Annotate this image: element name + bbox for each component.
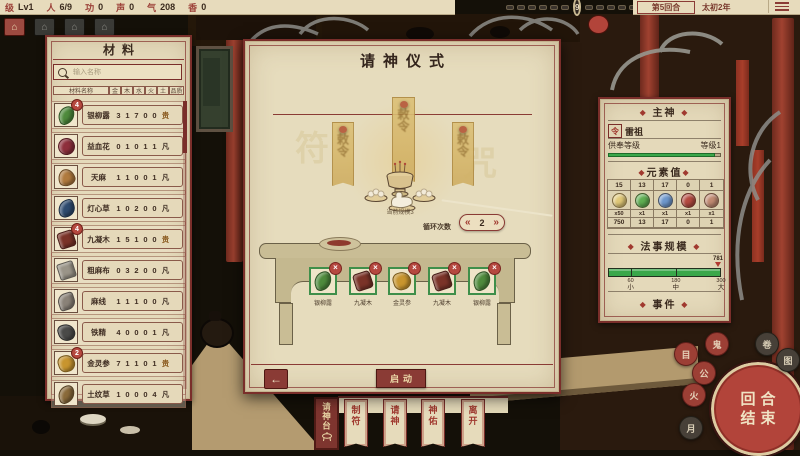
element-total: 750 — [608, 218, 631, 228]
turn-progress: 9 — [506, 0, 636, 14]
search-input[interactable] — [71, 68, 177, 77]
element-current-value: 0 — [677, 180, 700, 191]
element-value: 1 — [114, 297, 123, 306]
divider — [53, 59, 184, 60]
material-name: 土纹草 — [83, 389, 114, 400]
god-name: 雷祖 — [625, 125, 643, 138]
element-total: 1 — [700, 218, 723, 228]
stat: 功0 — [85, 1, 103, 14]
element-value: 7 — [114, 359, 123, 368]
stat-value: 6/9 — [60, 2, 73, 12]
header-quality: 品质 — [169, 86, 184, 95]
material-icon — [54, 289, 78, 313]
material-quality: 贵 — [159, 358, 172, 369]
cycle-stepper: « 2 » — [459, 214, 505, 231]
slot-item-label: 九凝木 — [420, 298, 464, 307]
stat: 声0 — [116, 1, 134, 14]
offering-slot[interactable]: × — [468, 267, 496, 295]
worship-level-value: 等级1 — [701, 140, 721, 151]
element-value: 0 — [141, 328, 150, 337]
material-name: 九凝木 — [83, 234, 114, 245]
element-value: 0 — [150, 204, 159, 213]
year-label: 太初2年 — [702, 2, 730, 13]
materials-panel: 材料 材料名称 金木水火土 品质 4银柳露31700贵益血花01011凡天麻11… — [45, 35, 192, 401]
game-screen: { "top_bar": { "stats": [ {"label": "级",… — [0, 0, 800, 450]
element-value: 1 — [132, 297, 141, 306]
element-value: 3 — [114, 111, 123, 120]
element-value: 0 — [141, 359, 150, 368]
element-value: 1 — [141, 142, 150, 151]
tab-divine-blessing[interactable]: 神佑 — [421, 399, 445, 447]
seal-button[interactable]: 卷 — [755, 332, 779, 356]
material-quality: 凡 — [159, 172, 172, 183]
material-icon-shape — [55, 290, 76, 311]
turn-dash — [539, 5, 547, 10]
end-turn-button[interactable]: 回合 结束 — [711, 362, 800, 456]
material-info: 麻线11100凡 — [82, 291, 183, 311]
remove-slot-button[interactable]: × — [369, 262, 382, 275]
material-name: 麻线 — [83, 296, 114, 307]
scale-tick: 300大 — [709, 278, 733, 291]
material-icon: 2 — [54, 351, 78, 375]
element-value: 0 — [150, 297, 159, 306]
material-icon: 4 — [54, 103, 78, 127]
seal-button[interactable]: 鬼 — [705, 332, 729, 356]
material-quality: 凡 — [159, 265, 172, 276]
element-value: 0 — [132, 390, 141, 399]
element-value: 0 — [150, 111, 159, 120]
scale-division — [631, 268, 632, 277]
scale-marker-arrow — [715, 262, 721, 267]
count-badge: 2 — [71, 347, 83, 359]
view-buttons: ⌂⌂⌂⌂ — [4, 18, 115, 36]
scrollbar-thumb[interactable] — [183, 101, 187, 153]
element-current-value: 13 — [631, 180, 654, 191]
element-value: 0 — [141, 266, 150, 275]
material-info: 灯心草10200凡 — [82, 198, 183, 218]
talisman-banner-right: 敕令 — [452, 122, 474, 186]
count-badge: 4 — [71, 223, 83, 235]
turn-dash — [561, 5, 569, 10]
material-name: 天麻 — [83, 172, 114, 183]
material-quality: 凡 — [159, 141, 172, 152]
turn-number-badge: 9 — [573, 0, 581, 16]
turn-dash — [596, 5, 604, 10]
ghost-glyph: 符 — [295, 121, 329, 170]
stat-value: 0 — [201, 2, 206, 12]
material-info: 土纹草10004凡 — [82, 384, 183, 404]
material-quality: 凡 — [159, 327, 172, 338]
back-button[interactable]: ← — [264, 369, 288, 389]
material-info: 银柳露31700贵 — [82, 105, 183, 125]
element-value: 1 — [114, 390, 123, 399]
element-value: 0 — [123, 390, 132, 399]
material-quality: 凡 — [159, 203, 172, 214]
scale-tick: 60小 — [619, 278, 643, 291]
seal-button[interactable]: 公 — [692, 361, 716, 385]
header-element: 火 — [145, 86, 157, 95]
element-value: 1 — [150, 173, 159, 182]
element-value: 0 — [114, 266, 123, 275]
element-current-value: 1 — [700, 180, 723, 191]
materials-title: 材料 — [47, 41, 190, 58]
material-name: 铁精 — [83, 327, 114, 338]
element-value: 1 — [123, 111, 132, 120]
stat-value: 208 — [160, 2, 175, 12]
element-value: 1 — [123, 359, 132, 368]
cycle-count-label: 循环次数 — [423, 222, 451, 232]
seal-button[interactable]: 火 — [682, 383, 706, 407]
element-orb-icon — [658, 193, 673, 208]
header-elements: 金木水火土 — [109, 86, 169, 95]
material-name: 银柳露 — [83, 110, 114, 121]
stat: 气208 — [147, 1, 175, 14]
turn-dash — [607, 5, 615, 10]
element-value: 0 — [123, 204, 132, 213]
offering-slot[interactable]: × — [349, 267, 377, 295]
ritual-modal: 请神仪式 符 咒 敕令 敕令 敕令 当前规模3 循环次数 « 2 » ×银柳露×… — [243, 39, 561, 394]
element-value: 0 — [114, 142, 123, 151]
header-element: 水 — [133, 86, 145, 95]
stat-label: 功 — [85, 1, 94, 14]
tab-make-talisman[interactable]: 制符 — [344, 399, 368, 447]
worship-progress-fill — [608, 153, 715, 157]
element-total: 13 — [631, 218, 654, 228]
material-icon — [54, 382, 78, 406]
top-stats: 级Lv1人6/9功0声0气208香0 — [0, 0, 455, 14]
altar-leg — [279, 303, 293, 345]
element-icon-cell — [700, 191, 723, 210]
material-info: 金灵参71101贵 — [82, 353, 183, 373]
view-toggle-1[interactable]: ⌂ — [4, 18, 25, 36]
element-value: 0 — [132, 328, 141, 337]
god-status-panel: ◆ 主神 ◆ 令 雷祖 供奉等级 等级1 ◆元素值◆ 15131701x50x1… — [598, 97, 731, 323]
material-quality: 凡 — [159, 296, 172, 307]
header-material-name: 材料名称 — [53, 86, 109, 95]
materials-list: 4银柳露31700贵益血花01011凡天麻11001凡灯心草10200凡4九凝木… — [51, 101, 186, 408]
stat: 级Lv1 — [5, 1, 34, 14]
element-current-value: 17 — [654, 180, 677, 191]
burner-icon — [321, 432, 333, 442]
turn-dash — [585, 5, 593, 10]
scene-bowl — [80, 414, 106, 424]
element-value: 1 — [123, 297, 132, 306]
stat-label: 级 — [5, 1, 14, 14]
tab-ritual-altar[interactable]: 请神台 — [314, 397, 339, 450]
turn-dashes-right — [585, 5, 637, 10]
cycle-value: 2 — [479, 218, 484, 228]
element-values-table: 15131701x50x1x1x1x1750131701 — [607, 179, 724, 229]
material-icon — [54, 320, 78, 344]
element-multiplier: x1 — [700, 210, 723, 218]
round-counter: 第5回合 — [637, 1, 695, 14]
start-ritual-button[interactable]: 启动 — [376, 369, 426, 388]
turn-dashes-left — [506, 5, 569, 10]
element-value: 0 — [150, 266, 159, 275]
element-value: 0 — [141, 390, 150, 399]
element-value: 1 — [150, 142, 159, 151]
modal-title: 请神仪式 — [245, 50, 559, 71]
element-value: 3 — [123, 266, 132, 275]
element-value: 1 — [132, 235, 141, 244]
element-value: 0 — [132, 173, 141, 182]
material-name: 益血花 — [83, 141, 114, 152]
offering-slot[interactable]: × — [309, 267, 337, 295]
slot-item-label: 银柳露 — [301, 298, 345, 307]
material-info: 天麻11001凡 — [82, 167, 183, 187]
element-value: 0 — [141, 297, 150, 306]
material-icon — [54, 165, 78, 189]
scale-tick-label: 大 — [709, 284, 733, 291]
stat-value: 0 — [129, 2, 134, 12]
element-value: 0 — [141, 235, 150, 244]
scale-division — [676, 268, 677, 277]
stat-label: 声 — [116, 1, 125, 14]
element-value: 1 — [123, 173, 132, 182]
material-quality: 贵 — [159, 110, 172, 121]
element-total: 0 — [677, 218, 700, 228]
seal-button[interactable]: 月 — [679, 416, 703, 440]
element-orb-icon — [704, 193, 719, 208]
turn-dash — [618, 5, 626, 10]
scale-tick-label: 中 — [664, 284, 688, 291]
talisman-banner-left: 敕令 — [332, 122, 354, 186]
element-multiplier: x1 — [654, 210, 677, 218]
material-row[interactable]: 2金灵参71101贵 — [51, 349, 186, 377]
element-current-value: 15 — [608, 180, 631, 191]
turn-dash — [517, 5, 525, 10]
element-multiplier: x1 — [677, 210, 700, 218]
main-god-header: ◆ 主神 ◆ — [600, 104, 729, 119]
element-orb-icon — [681, 193, 696, 208]
search-box[interactable] — [53, 64, 182, 80]
material-info: 粗麻布03200凡 — [82, 260, 183, 280]
turn-dash — [550, 5, 558, 10]
material-quality: 凡 — [159, 389, 172, 400]
stat-label: 人 — [47, 1, 56, 14]
element-icon-cell — [677, 191, 700, 210]
material-row[interactable]: 麻线11100凡 — [51, 287, 186, 315]
stat: 人6/9 — [47, 1, 73, 14]
header-element: 木 — [121, 86, 133, 95]
element-value: 0 — [141, 111, 150, 120]
stat-label: 香 — [188, 1, 197, 14]
slot-item-label: 金灵参 — [380, 298, 424, 307]
element-value: 0 — [123, 328, 132, 337]
offering-slot[interactable]: × — [428, 267, 456, 295]
element-value: 2 — [132, 204, 141, 213]
divider — [251, 364, 553, 365]
material-quality: 贵 — [159, 234, 172, 245]
element-value: 0 — [141, 173, 150, 182]
material-row[interactable]: 土纹草10004凡 — [51, 380, 186, 408]
view-toggle-4[interactable]: ⌂ — [94, 18, 115, 36]
material-info: 益血花01011凡 — [82, 136, 183, 156]
material-icon — [54, 196, 78, 220]
element-value: 0 — [141, 204, 150, 213]
material-icon — [54, 134, 78, 158]
material-row[interactable]: 粗麻布03200凡 — [51, 256, 186, 284]
element-icon-cell — [608, 191, 631, 210]
ritual-scale-bar — [608, 268, 721, 277]
cycle-decrease-button[interactable]: « — [465, 218, 471, 228]
remove-slot-button[interactable]: × — [408, 262, 421, 275]
stat: 香0 — [188, 1, 206, 14]
material-row[interactable]: 灯心草10200凡 — [51, 194, 186, 222]
element-value: 0 — [132, 142, 141, 151]
material-name: 灯心草 — [83, 203, 114, 214]
scene-pot — [32, 420, 50, 434]
offering-slot[interactable]: × — [388, 267, 416, 295]
element-value: 4 — [114, 328, 123, 337]
material-icon-shape — [55, 321, 76, 342]
element-orb-icon — [612, 193, 627, 208]
scale-tick-label: 小 — [619, 284, 643, 291]
remove-slot-button[interactable]: × — [329, 262, 342, 275]
scene-stool — [200, 318, 234, 348]
cycle-increase-button[interactable]: » — [493, 218, 499, 228]
element-value: 4 — [150, 390, 159, 399]
slot-item-label: 九凝木 — [341, 298, 385, 307]
remove-slot-button[interactable]: × — [448, 262, 461, 275]
altar-tabletop — [259, 243, 531, 259]
element-value: 1 — [132, 359, 141, 368]
element-value: 7 — [132, 111, 141, 120]
worship-level-label: 供奉等级 — [608, 140, 640, 151]
incense-burner — [362, 160, 438, 214]
material-icon-shape — [55, 259, 76, 280]
material-name: 粗麻布 — [83, 265, 114, 276]
stat-value: 0 — [98, 2, 103, 12]
header-element: 土 — [157, 86, 169, 95]
remove-slot-button[interactable]: × — [488, 262, 501, 275]
element-value: 1 — [150, 328, 159, 337]
material-icon-shape — [55, 135, 76, 156]
menu-button[interactable] — [768, 0, 794, 13]
material-icon-shape — [55, 166, 76, 187]
god-tablet-icon: 令 — [608, 124, 622, 138]
elements-header: ◆元素值◆ — [600, 164, 729, 179]
element-multiplier: x50 — [608, 210, 631, 218]
scene-bowl — [120, 426, 140, 434]
element-value: 0 — [150, 235, 159, 244]
material-name: 金灵参 — [83, 358, 114, 369]
element-value: 1 — [150, 359, 159, 368]
tab-leave[interactable]: 离开 — [461, 399, 485, 447]
material-icon-shape — [55, 383, 76, 404]
material-icon — [54, 258, 78, 282]
stat-value: Lv1 — [18, 2, 34, 12]
turn-dash — [506, 5, 514, 10]
offering-food — [327, 240, 351, 246]
view-toggle-3[interactable]: ⌂ — [64, 18, 85, 36]
material-info: 九凝木15100贵 — [82, 229, 183, 249]
burner-caption: 当前规模3 — [355, 207, 445, 216]
search-icon — [58, 68, 67, 77]
view-toggle-2[interactable]: ⌂ — [34, 18, 55, 36]
element-value: 5 — [123, 235, 132, 244]
slot-item-label: 银柳露 — [460, 298, 504, 307]
element-icon-cell — [631, 191, 654, 210]
scale-tick: 180中 — [664, 278, 688, 291]
header-element: 金 — [109, 86, 121, 95]
element-orb-icon — [635, 193, 650, 208]
count-badge: 4 — [71, 99, 83, 111]
material-icon: 4 — [54, 227, 78, 251]
top-status-bar: 级Lv1人6/9功0声0气208香0 — [0, 0, 455, 15]
material-row[interactable]: 4银柳露31700贵 — [51, 101, 186, 129]
element-multiplier: x1 — [631, 210, 654, 218]
element-value: 1 — [114, 173, 123, 182]
material-row[interactable]: 天麻11001凡 — [51, 163, 186, 191]
tab-invite-god[interactable]: 请神 — [383, 399, 407, 447]
material-row[interactable]: 铁精40001凡 — [51, 318, 186, 346]
seal-button[interactable]: 目 — [674, 342, 698, 366]
ritual-scale-header: ◆ 法事规模 ◆ — [600, 238, 729, 253]
element-value: 1 — [114, 235, 123, 244]
material-icon-shape — [55, 197, 76, 218]
element-value: 1 — [114, 204, 123, 213]
element-value: 1 — [123, 142, 132, 151]
element-icon-cell — [654, 191, 677, 210]
element-total: 17 — [654, 218, 677, 228]
scene-pot — [209, 311, 221, 321]
material-info: 铁精40001凡 — [82, 322, 183, 342]
events-header: ◆ 事件 ◆ — [600, 296, 729, 311]
stat-label: 气 — [147, 1, 156, 14]
materials-header-row: 材料名称 金木水火土 品质 — [53, 86, 184, 95]
altar-leg — [497, 303, 511, 345]
material-row[interactable]: 4九凝木15100贵 — [51, 225, 186, 253]
turn-dash — [528, 5, 536, 10]
seal-button[interactable]: 图 — [776, 348, 800, 372]
element-value: 2 — [132, 266, 141, 275]
material-row[interactable]: 益血花01011凡 — [51, 132, 186, 160]
